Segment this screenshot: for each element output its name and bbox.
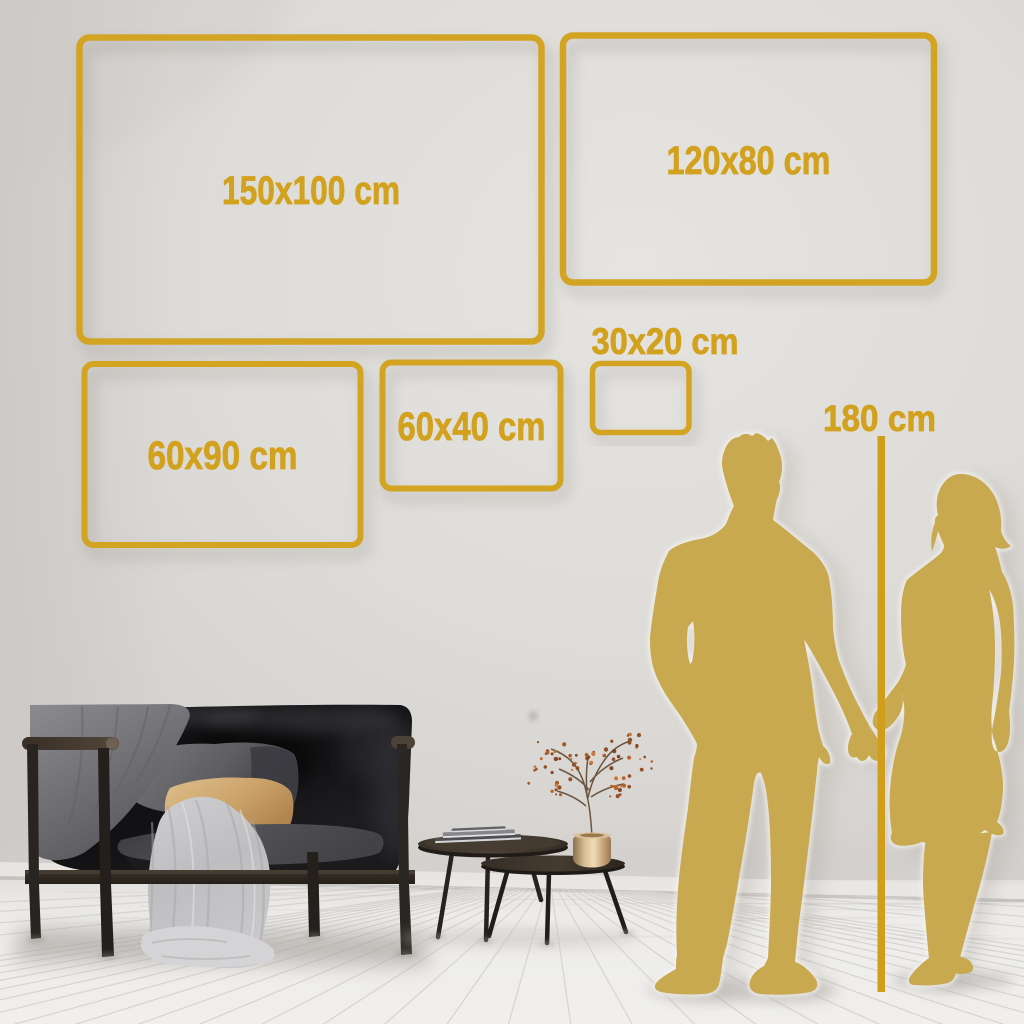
svg-text:60x90 cm: 60x90 cm: [148, 434, 298, 478]
svg-text:150x100 cm: 150x100 cm: [222, 169, 400, 213]
svg-text:120x80 cm: 120x80 cm: [667, 139, 831, 183]
svg-text:60x40 cm: 60x40 cm: [398, 405, 546, 449]
svg-text:180 cm: 180 cm: [823, 398, 936, 439]
svg-text:30x20 cm: 30x20 cm: [592, 321, 739, 362]
